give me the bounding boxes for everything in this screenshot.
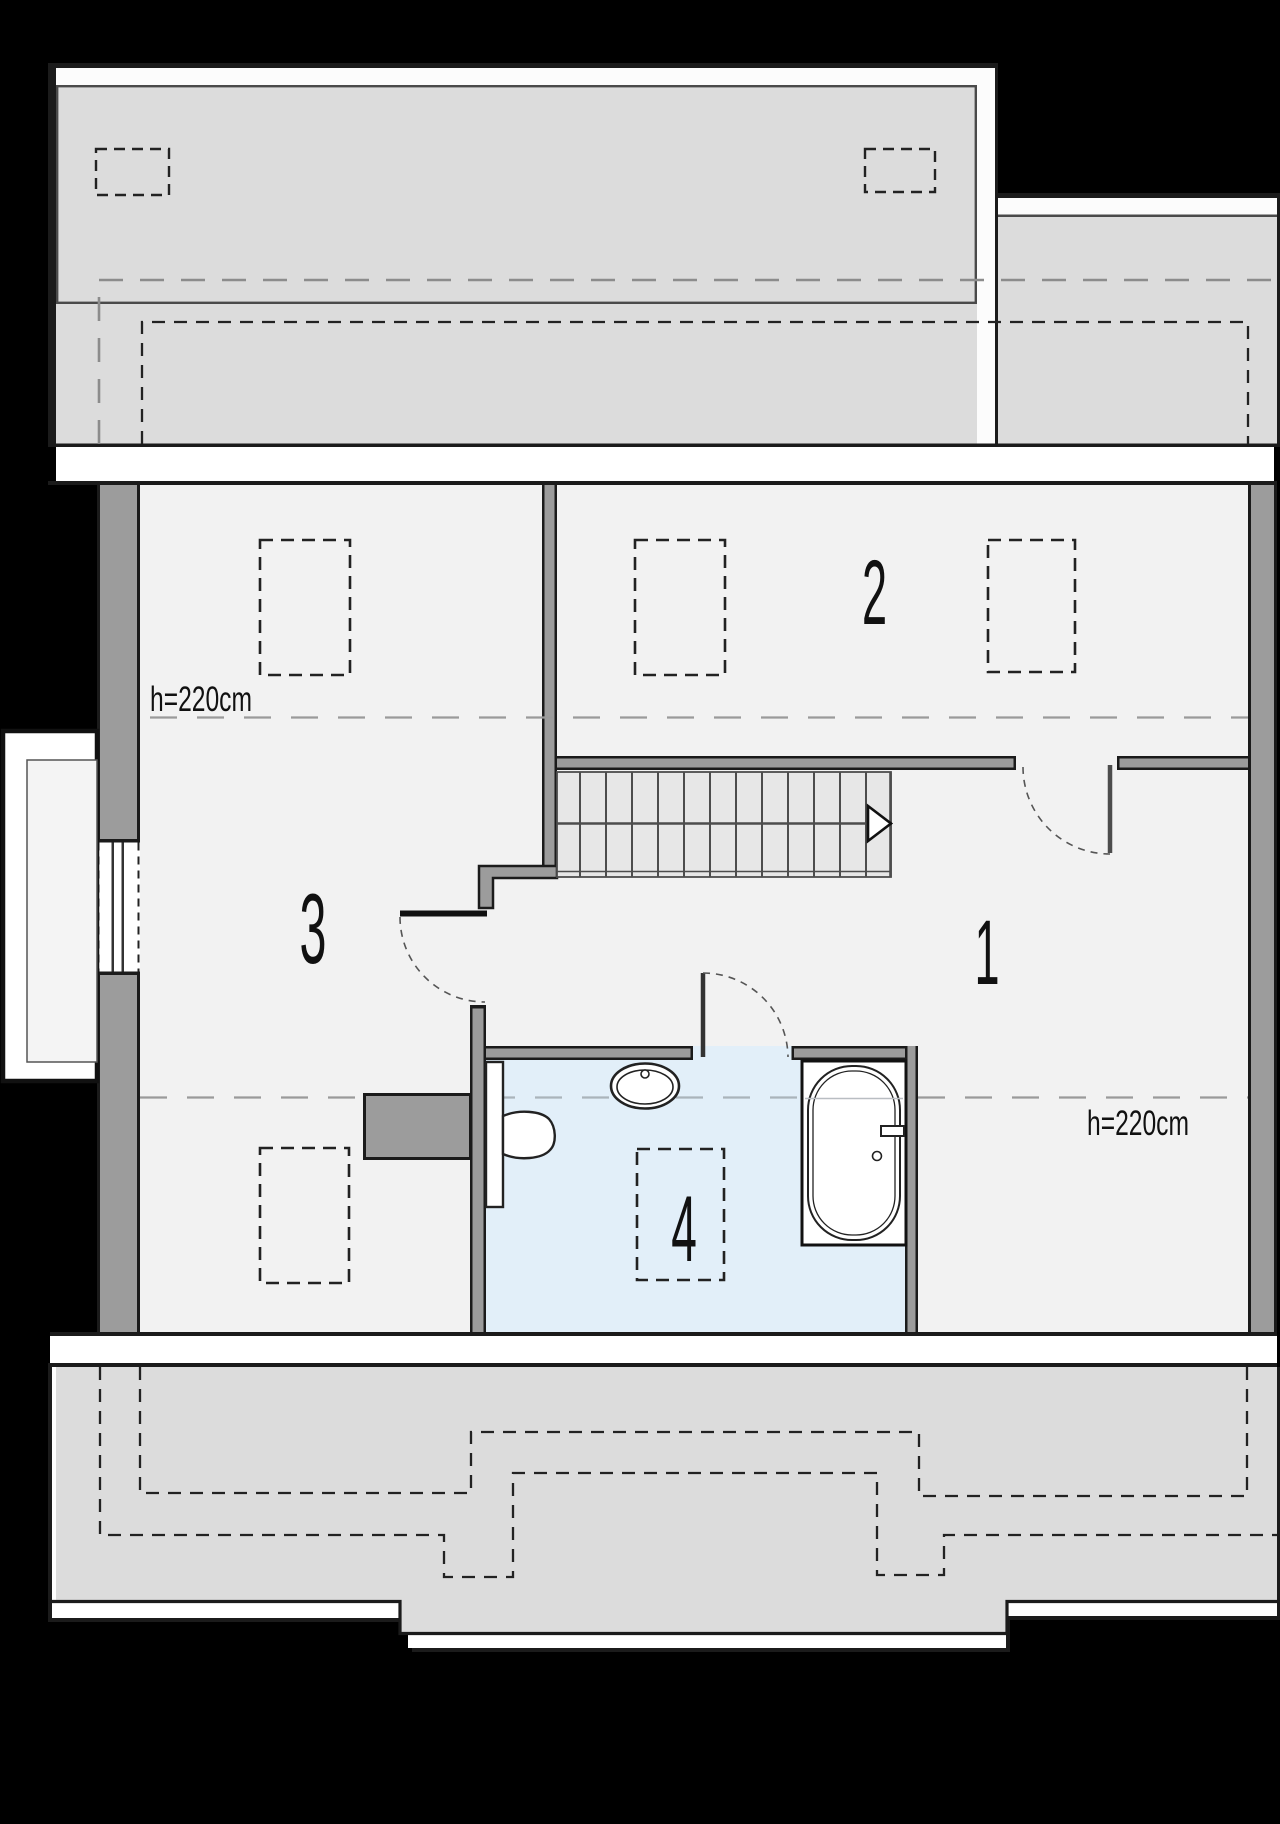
svg-text:3: 3 xyxy=(300,873,327,985)
svg-text:h=220cm: h=220cm xyxy=(1087,1104,1189,1143)
svg-text:4: 4 xyxy=(671,1176,697,1281)
svg-text:h=220cm: h=220cm xyxy=(150,680,252,719)
svg-text:1: 1 xyxy=(974,901,999,1004)
svg-text:2: 2 xyxy=(862,541,887,644)
